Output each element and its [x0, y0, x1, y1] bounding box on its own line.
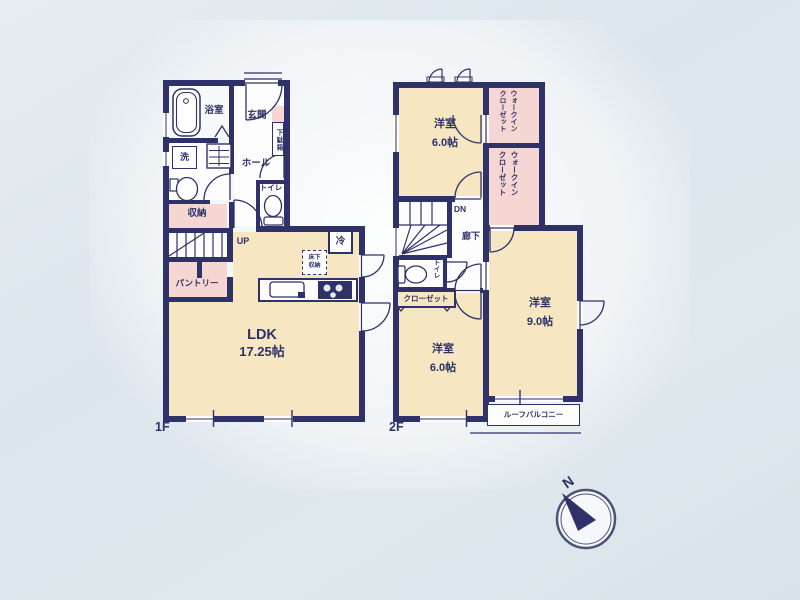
stairs-1f-treads — [169, 233, 222, 257]
bedroom-bottom-size: 6.0帖 — [417, 362, 469, 375]
toilet-1f-label: トイレ — [257, 184, 285, 193]
storage-label: 収納 — [172, 209, 222, 220]
wic2-line1: ウォークイン — [508, 151, 520, 223]
closet-label: クローゼット — [404, 294, 449, 303]
closet-box: クローゼット — [396, 290, 456, 308]
hall-label: ホール — [234, 159, 278, 170]
floor2-label: 2F — [389, 420, 417, 434]
compass-icon — [557, 490, 615, 548]
bedroom-right-label: 洋室 — [518, 297, 562, 310]
roof-balcony-box: ルーフバルコニー — [487, 404, 580, 426]
entrance-label: 玄関 — [238, 111, 276, 122]
toilet-1f-icon — [264, 196, 283, 226]
fridge-box: 冷 — [328, 230, 353, 254]
ldk-label: LDK — [227, 327, 297, 344]
shoe-cabinet-label: 下駄箱 — [275, 129, 282, 152]
cabinet-icon — [207, 144, 231, 168]
floor-storage-label-1: 床下 — [303, 255, 326, 263]
wic1-label: ウォークイン クローゼット — [495, 90, 519, 142]
kitchen-counter — [258, 278, 358, 302]
wic2-label: ウォークイン クローゼット — [496, 151, 520, 223]
corridor-label: 廊下 — [456, 231, 486, 241]
floor1-label: 1F — [155, 420, 183, 434]
bedroom-bottom-label: 洋室 — [421, 343, 465, 356]
fridge-label: 冷 — [336, 236, 346, 247]
bath-label: 浴室 — [196, 106, 232, 117]
toilet-2f-icon — [398, 266, 427, 283]
wic1-line2: クローゼット — [497, 90, 508, 142]
wic1-line1: ウォークイン — [508, 90, 519, 142]
vanity-icon — [170, 178, 198, 201]
stairs-up-label: UP — [231, 236, 255, 246]
casement-window-icons — [427, 69, 472, 82]
shoe-cabinet-box: 下駄箱 — [272, 122, 284, 156]
floorplan-page: 洗 下駄箱 冷 床下 収納 クローゼット ルーフバルコニー 浴室 玄関 ホール … — [0, 0, 800, 600]
bedroom-top-size: 6.0帖 — [419, 137, 471, 150]
bath-folding-door-icon — [215, 126, 229, 137]
stairs-dn-label: DN — [447, 205, 473, 215]
bedroom-right-size: 9.0帖 — [514, 316, 566, 329]
pantry-label: パントリー — [167, 279, 227, 289]
bedroom-top-label: 洋室 — [423, 118, 467, 131]
floor-storage-box: 床下 収納 — [302, 250, 327, 275]
stairs-2f-treads — [399, 202, 447, 254]
wic2-line2: クローゼット — [496, 151, 508, 223]
kitchen-fixtures — [260, 280, 356, 300]
washer-label: 洗 — [180, 152, 189, 162]
roof-balcony-label: ルーフバルコニー — [504, 410, 563, 419]
threshold-lines — [244, 73, 581, 433]
toilet-2f-label: トイレ — [428, 259, 440, 289]
ldk-size-label: 17.25帖 — [222, 345, 302, 360]
floor-storage-label-2: 収納 — [303, 263, 326, 271]
washing-machine-box: 洗 — [172, 146, 197, 169]
